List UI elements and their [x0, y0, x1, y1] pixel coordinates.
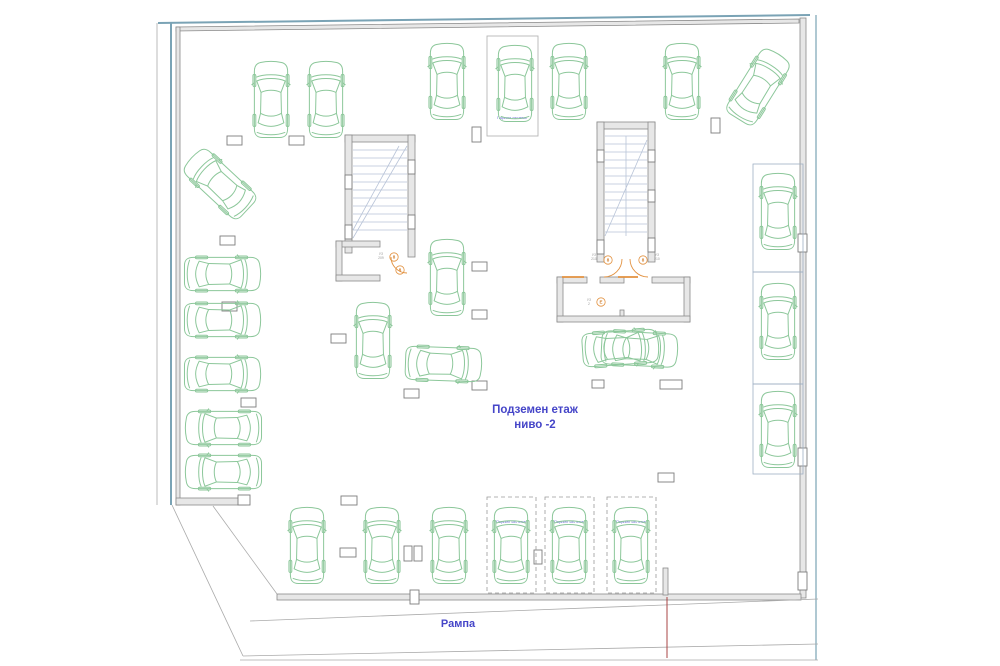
car — [428, 239, 467, 315]
car — [759, 283, 798, 359]
perimeter-walls — [176, 18, 807, 604]
car — [759, 173, 798, 249]
car — [759, 391, 798, 467]
car — [185, 409, 261, 448]
car — [354, 302, 393, 378]
door-tag-label: УЗ210 — [654, 253, 660, 261]
ramp-label: Рампа — [408, 618, 508, 630]
stair-core-left — [336, 135, 415, 281]
door-tag-number: 8 — [393, 255, 396, 260]
elevator-lobby — [557, 277, 690, 322]
car — [612, 507, 651, 583]
door-swings — [391, 257, 648, 277]
parking-system-box — [753, 272, 803, 384]
stair-core-right — [557, 122, 690, 322]
parking-system-box — [753, 384, 803, 474]
door-tag-number: 8 — [642, 258, 645, 263]
car — [663, 43, 702, 119]
parking-boxes-layer: Паркинг системаПаркинг системаПаркинг си… — [487, 36, 803, 593]
car — [496, 45, 535, 121]
car — [288, 507, 327, 583]
stair-treads-left — [353, 146, 407, 238]
car — [550, 507, 589, 583]
car — [307, 61, 346, 137]
door-tag-label: УЗ210 — [591, 253, 597, 261]
parking-system-box — [753, 164, 803, 272]
site-boundary — [157, 15, 816, 660]
car — [428, 43, 467, 119]
car — [363, 507, 402, 583]
car — [601, 328, 679, 371]
stair-treads-right — [605, 136, 647, 236]
parking-system-box — [487, 36, 538, 136]
car — [550, 43, 589, 119]
level-label: Подземен етаж ниво -2 — [455, 403, 615, 433]
car — [178, 143, 260, 223]
cars-layer — [178, 43, 797, 583]
car — [184, 255, 260, 294]
level-label-line2: ниво -2 — [455, 418, 615, 433]
floor-plan-canvas: Паркинг системаПаркинг системаПаркинг си… — [0, 0, 1000, 666]
door-tag-number: 8 — [607, 258, 610, 263]
level-label-line1: Подземен етаж — [455, 403, 615, 418]
door-tag-number: Е — [599, 300, 602, 305]
floorplan-page: Паркинг системаПаркинг системаПаркинг си… — [0, 0, 1000, 666]
car — [492, 507, 531, 583]
door-tag-label: УЗ209 — [378, 252, 384, 260]
car — [405, 343, 482, 385]
car — [252, 61, 291, 137]
car — [430, 507, 469, 583]
door-tag-label: УЗ2 — [587, 298, 591, 306]
car — [184, 355, 260, 394]
car — [722, 44, 795, 129]
ramp-area — [172, 505, 818, 660]
car — [185, 453, 261, 492]
